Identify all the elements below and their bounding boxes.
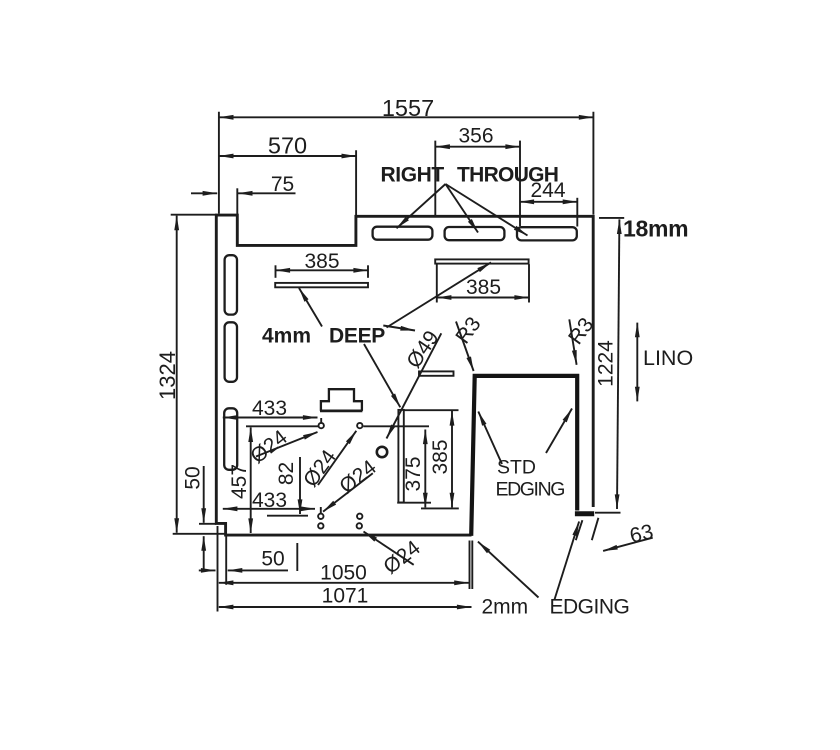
svg-text:Ø24: Ø24 (335, 456, 381, 499)
svg-text:570: 570 (268, 133, 307, 159)
svg-text:1071: 1071 (322, 585, 369, 608)
svg-text:4mm: 4mm (262, 325, 311, 348)
svg-text:THROUGH: THROUGH (457, 164, 558, 187)
svg-text:R3: R3 (451, 313, 485, 348)
svg-text:63: 63 (628, 520, 656, 548)
svg-text:433: 433 (252, 489, 287, 512)
svg-text:STD: STD (497, 457, 536, 479)
svg-text:82: 82 (275, 462, 298, 485)
svg-text:1050: 1050 (320, 562, 367, 585)
svg-text:75: 75 (271, 173, 294, 196)
svg-text:1324: 1324 (155, 351, 180, 400)
svg-text:385: 385 (304, 250, 339, 273)
svg-text:433: 433 (252, 397, 287, 420)
svg-text:18mm: 18mm (623, 216, 688, 242)
svg-text:356: 356 (458, 125, 493, 148)
svg-text:385: 385 (466, 276, 501, 299)
svg-text:375: 375 (402, 456, 425, 491)
svg-text:1224: 1224 (595, 340, 618, 387)
svg-text:457: 457 (228, 464, 251, 499)
svg-text:Ø24: Ø24 (379, 536, 425, 579)
svg-text:EDGING: EDGING (550, 596, 630, 619)
svg-text:Ø49: Ø49 (402, 327, 443, 373)
svg-text:DEEP: DEEP (329, 325, 385, 348)
svg-text:EDGING: EDGING (496, 479, 565, 501)
svg-text:50: 50 (261, 548, 284, 571)
svg-text:1557: 1557 (382, 95, 434, 121)
svg-text:Ø24: Ø24 (299, 445, 341, 491)
svg-text:RIGHT: RIGHT (381, 164, 445, 187)
svg-text:2mm: 2mm (482, 596, 529, 619)
svg-text:385: 385 (429, 439, 452, 474)
svg-text:LINO: LINO (643, 346, 693, 370)
svg-text:50: 50 (182, 466, 205, 489)
